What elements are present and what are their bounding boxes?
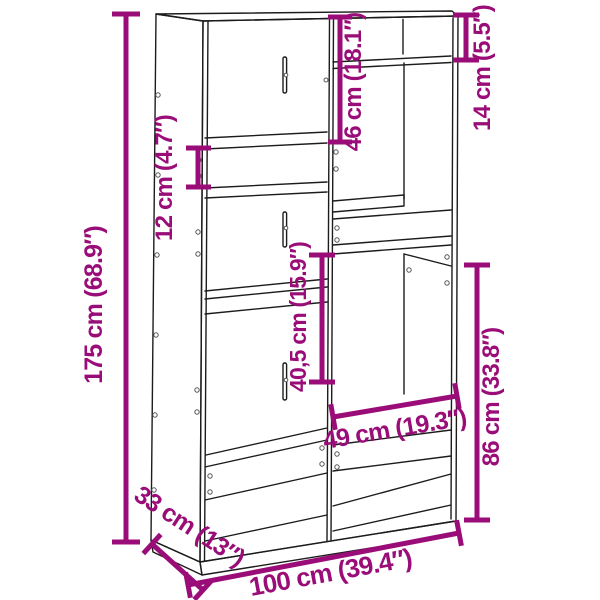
furniture-dimension-diagram: 175 cm (68.9″) 12 cm (4.7″) 46 cm (18.1″… [0,0,600,600]
right-panel-inner-edge [451,18,453,519]
dim-middle-label: 40,5 cm (15.9″) [285,242,311,392]
left-shelf-top [205,132,327,149]
left-back-rail [206,428,327,455]
dim-top-right-label: 14 cm (5.5″) [469,5,496,131]
dim-right-label: 86 cm (33.8″) [478,328,505,467]
center-divider [327,19,334,541]
right-bottom-board [333,505,451,531]
dim-top-left-label: 46 cm (18.1″) [340,13,367,152]
dimension-diagram-page: 175 cm (68.9″) 12 cm (4.7″) 46 cm (18.1″… [0,0,600,600]
right-shelf-2 [333,245,451,254]
right-backpanel-lower-top [404,254,451,266]
dimension-labels: 175 cm (68.9″) 12 cm (4.7″) 46 cm (18.1″… [80,5,505,600]
dimension-middle-40-5 [309,255,335,382]
dim-slot-label: 12 cm (4.7″) [151,115,178,241]
right-floor-line [333,474,451,506]
dim-height-label: 175 cm (68.9″) [80,226,108,384]
right-back-rail [333,195,404,212]
dimension-height-175 [112,14,140,542]
left-slot-board-bottom [205,182,327,198]
dim-inner-width-label: 49 cm (19.3″) [321,403,469,455]
right-shelf-band [333,210,451,245]
left-shelf-lower-band [205,440,327,500]
